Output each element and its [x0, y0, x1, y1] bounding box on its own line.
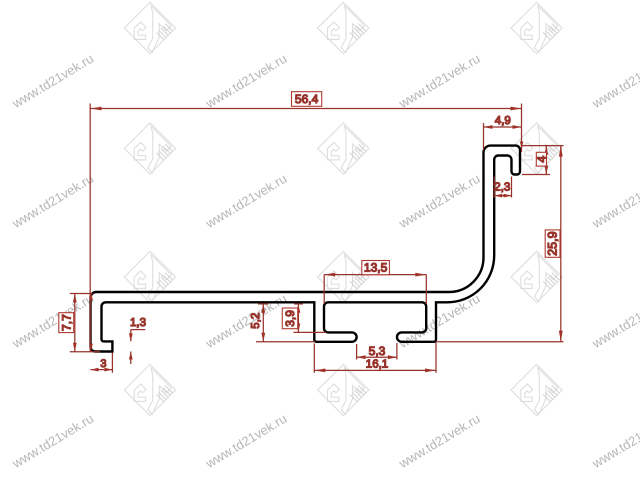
svg-text:3,9: 3,9 — [283, 310, 297, 327]
svg-text:5,2: 5,2 — [250, 313, 262, 329]
svg-text:16,1: 16,1 — [366, 359, 388, 371]
svg-text:7,7: 7,7 — [59, 314, 73, 331]
svg-text:5,3: 5,3 — [369, 344, 386, 358]
svg-text:1,3: 1,3 — [130, 317, 146, 329]
svg-text:4: 4 — [534, 156, 548, 163]
svg-text:4,9: 4,9 — [495, 115, 511, 127]
svg-text:13,5: 13,5 — [364, 261, 388, 275]
svg-text:2,3: 2,3 — [494, 182, 510, 194]
svg-text:56,4: 56,4 — [295, 92, 319, 106]
svg-text:3: 3 — [100, 358, 106, 370]
svg-text:25,9: 25,9 — [546, 231, 560, 255]
